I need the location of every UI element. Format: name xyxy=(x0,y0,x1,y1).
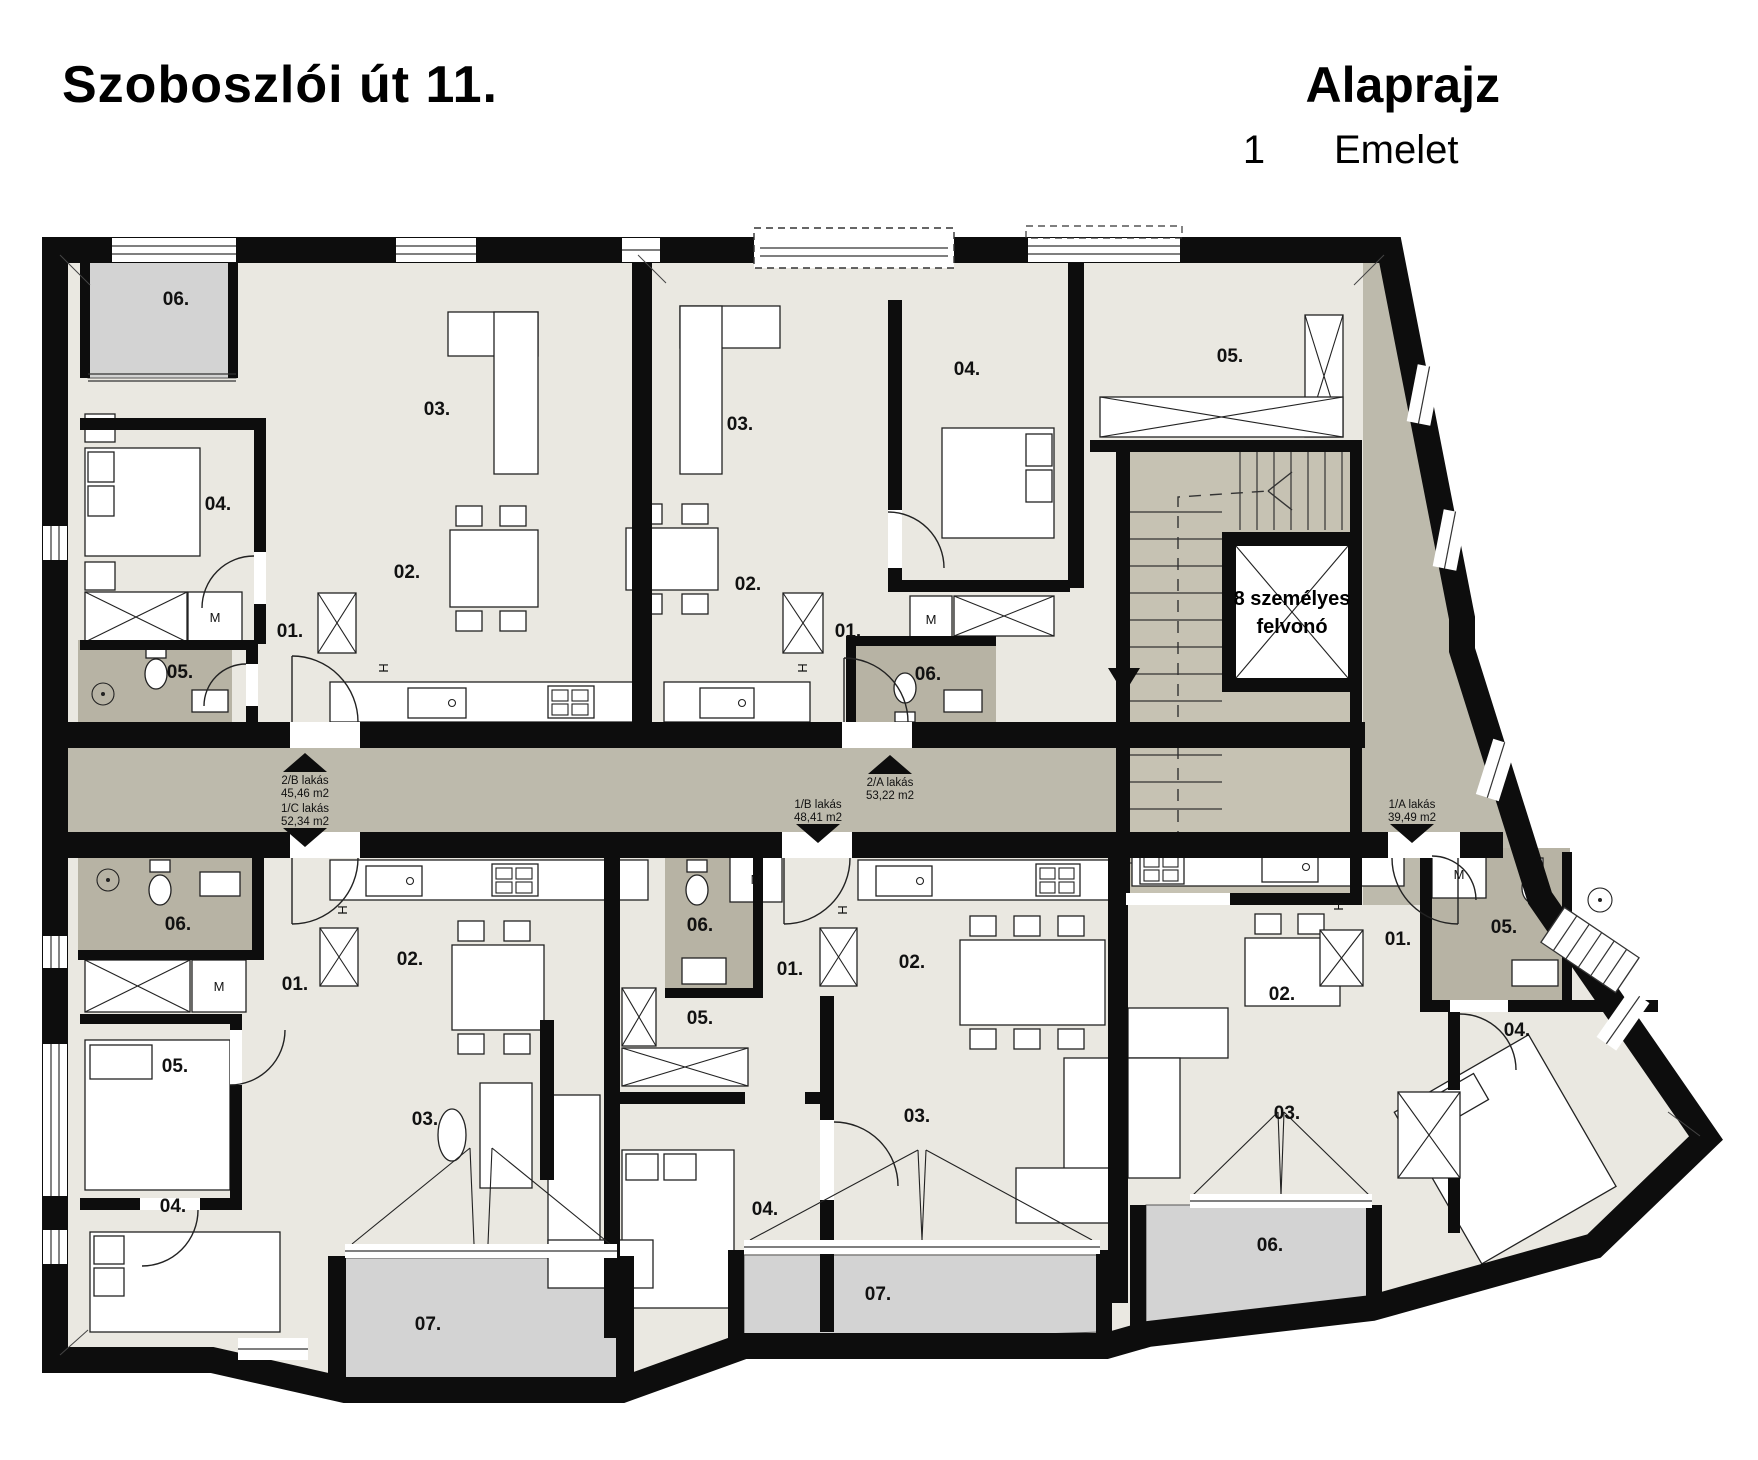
room-label: 04. xyxy=(160,1196,186,1217)
kitchen-2b xyxy=(330,682,648,722)
floor-plan-sheet: Szoboszlói út 11. Alaprajz 1 Emelet xyxy=(0,0,1758,1460)
fridge-label: H xyxy=(376,663,391,672)
room-label: 04. xyxy=(954,359,980,380)
room-label: 03. xyxy=(424,399,450,420)
balcony-1b xyxy=(744,1255,1100,1344)
dining-1b xyxy=(960,916,1105,1049)
apartment-area: 53,22 m2 xyxy=(866,790,914,802)
room-label: 01. xyxy=(835,621,861,642)
room-label: 06. xyxy=(163,289,189,310)
floor-word: Emelet xyxy=(1334,128,1459,172)
kitchen-1c xyxy=(330,860,648,900)
room-label: 03. xyxy=(727,414,753,435)
kitchen-1b xyxy=(858,860,1110,900)
room-label: 01. xyxy=(282,974,308,995)
room-label: 06. xyxy=(687,915,713,936)
floor-number: 1 xyxy=(1243,128,1265,172)
washing-machine-label: M xyxy=(751,872,762,887)
room-label: 02. xyxy=(394,562,420,583)
washing-machine-label: M xyxy=(1454,867,1465,882)
elevator-label-line1: 8 személyes xyxy=(1234,588,1351,610)
room-label: 05. xyxy=(1217,346,1243,367)
fridge-label: H xyxy=(335,905,350,914)
room-label: 06. xyxy=(915,664,941,685)
apartment-area: 48,41 m2 xyxy=(794,812,842,824)
room-label: 03. xyxy=(904,1106,930,1127)
elevator-label-line2: felvonó xyxy=(1256,616,1327,638)
room-label: 06. xyxy=(1257,1235,1283,1256)
room-label: 06. xyxy=(165,914,191,935)
room-label: 03. xyxy=(1274,1103,1300,1124)
room-label: 05. xyxy=(167,662,193,683)
room-label: 07. xyxy=(865,1284,891,1305)
washing-machine-label: M xyxy=(214,979,225,994)
bed-2a xyxy=(942,428,1054,538)
room-label: 05. xyxy=(1491,917,1517,938)
room-label: 02. xyxy=(1269,984,1295,1005)
room-label: 03. xyxy=(412,1109,438,1130)
room-label: 02. xyxy=(735,574,761,595)
room-label: 02. xyxy=(899,952,925,973)
apartment-area: 39,49 m2 xyxy=(1388,812,1436,824)
room-label: 07. xyxy=(415,1314,441,1335)
room-label: 02. xyxy=(397,949,423,970)
floor-plan-drawing: Szoboszlói út 11. Alaprajz 1 Emelet xyxy=(0,0,1758,1460)
room-label: 01. xyxy=(1385,929,1411,950)
bed-1c xyxy=(90,1232,280,1332)
fridge-label: H xyxy=(795,663,810,672)
fridge-label: H xyxy=(835,905,850,914)
apartment-name: 1/B lakás xyxy=(794,799,842,811)
fridge-label: H xyxy=(1331,901,1346,910)
washing-machine-label: M xyxy=(926,612,937,627)
washing-machine-label: M xyxy=(210,610,221,625)
apartment-name: 1/C lakás xyxy=(281,803,329,815)
apartment-area: 45,46 m2 xyxy=(281,788,329,800)
kitchen-2a xyxy=(664,682,810,722)
room-label: 01. xyxy=(277,621,303,642)
room-label: 04. xyxy=(205,494,231,515)
apartment-name: 2/A lakás xyxy=(867,777,914,789)
room-label: 04. xyxy=(1504,1020,1530,1041)
apartment-area: 52,34 m2 xyxy=(281,816,329,828)
apartment-name: 1/A lakás xyxy=(1389,799,1436,811)
plan-type-label: Alaprajz xyxy=(1305,57,1500,113)
sheet-title: Szoboszlói út 11. xyxy=(62,56,498,114)
room-label: 05. xyxy=(162,1056,188,1077)
bed-1c-small xyxy=(85,1040,230,1190)
room-label: 04. xyxy=(752,1199,778,1220)
room-label: 01. xyxy=(777,959,803,980)
balcony-2b xyxy=(88,258,236,378)
room-label: 05. xyxy=(687,1008,713,1029)
apartment-name: 2/B lakás xyxy=(281,775,329,787)
